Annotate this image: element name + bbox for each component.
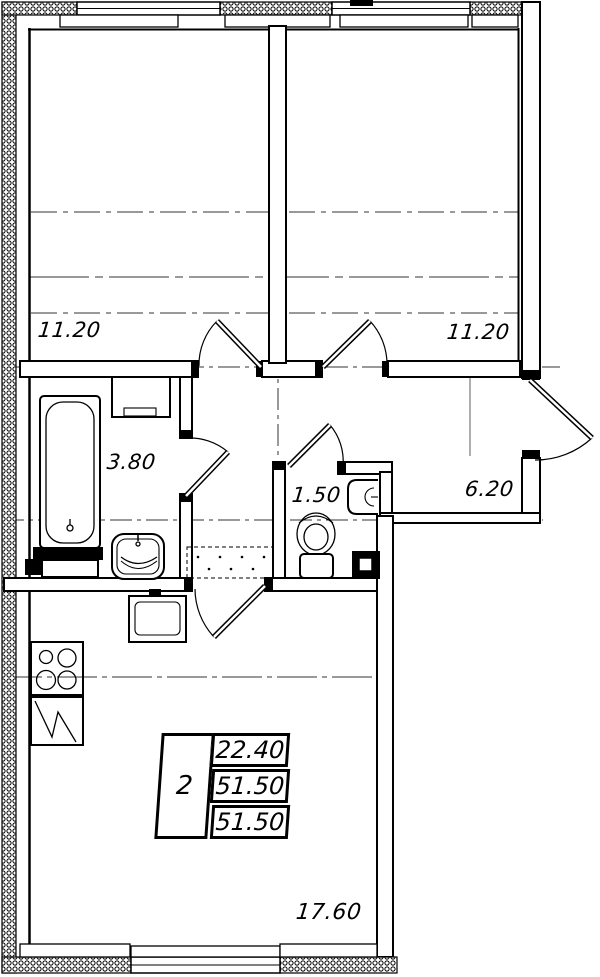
section-mark [350,0,373,6]
info-area-row: 22.40 [210,733,290,767]
wall-bottom-pier [280,957,397,973]
wall-middle [20,361,198,377]
door-wc [289,425,343,466]
wall-kitchen-top [4,578,192,591]
entrance-jamb [522,458,540,513]
area-label-wc: 1.50 [291,483,342,507]
wall-kitchen-right [377,516,393,957]
door-bathroom [186,438,228,496]
area-label-hallway: 6.20 [464,477,515,501]
bathtub-fixture [40,396,100,548]
door-entrance [530,380,592,460]
stove-fixture [31,642,83,695]
info-area-row: 51.50 [210,805,290,839]
toilet-fixture [297,513,335,578]
door-room-right [323,321,387,367]
info-rooms-count: 2 [154,733,214,839]
wall-bathroom [180,377,192,438]
info-area-row: 51.50 [210,769,290,803]
wall-middle [388,361,520,377]
window-sill [340,15,468,27]
wall-bathroom [180,494,192,579]
washing-machine-fixture [112,377,170,417]
area-label-bathroom: 3.80 [106,450,157,474]
window-sill [472,15,518,27]
floor-mat [187,547,273,578]
kitchen-sink-fixture [129,589,186,642]
wall-bottom-pier [2,957,131,973]
wall-rooms-divider [269,26,286,363]
window-sill [60,15,178,27]
window-sill [20,944,130,957]
wall-wc-hall [380,472,392,516]
door-room-left [199,321,261,367]
wall-top-pier [220,2,332,15]
window-sill [131,946,280,957]
wall-wc-left [273,462,285,579]
wall-right-exterior [522,2,540,378]
wall-top-pier [2,2,77,15]
door-kitchen [195,586,265,637]
wall-niche [42,560,98,577]
wc-sink-fixture [348,480,378,514]
wall-kitchen-top [265,578,377,591]
floor-plan: 11.20 11.20 3.80 1.50 6.20 17.60 2 22.40… [0,0,600,977]
fridge-fixture [31,697,83,745]
apartment-info-table: 2 22.40 51.50 51.50 [158,733,289,840]
area-label-room-right: 11.20 [446,320,511,344]
bathroom-sink-fixture [112,534,164,579]
window-sill [280,944,377,957]
wall-left-exterior [2,2,16,973]
area-label-room-left: 11.20 [37,318,102,342]
wall-hallway-bottom [380,513,540,523]
area-label-kitchen-living: 17.60 [295,900,363,925]
